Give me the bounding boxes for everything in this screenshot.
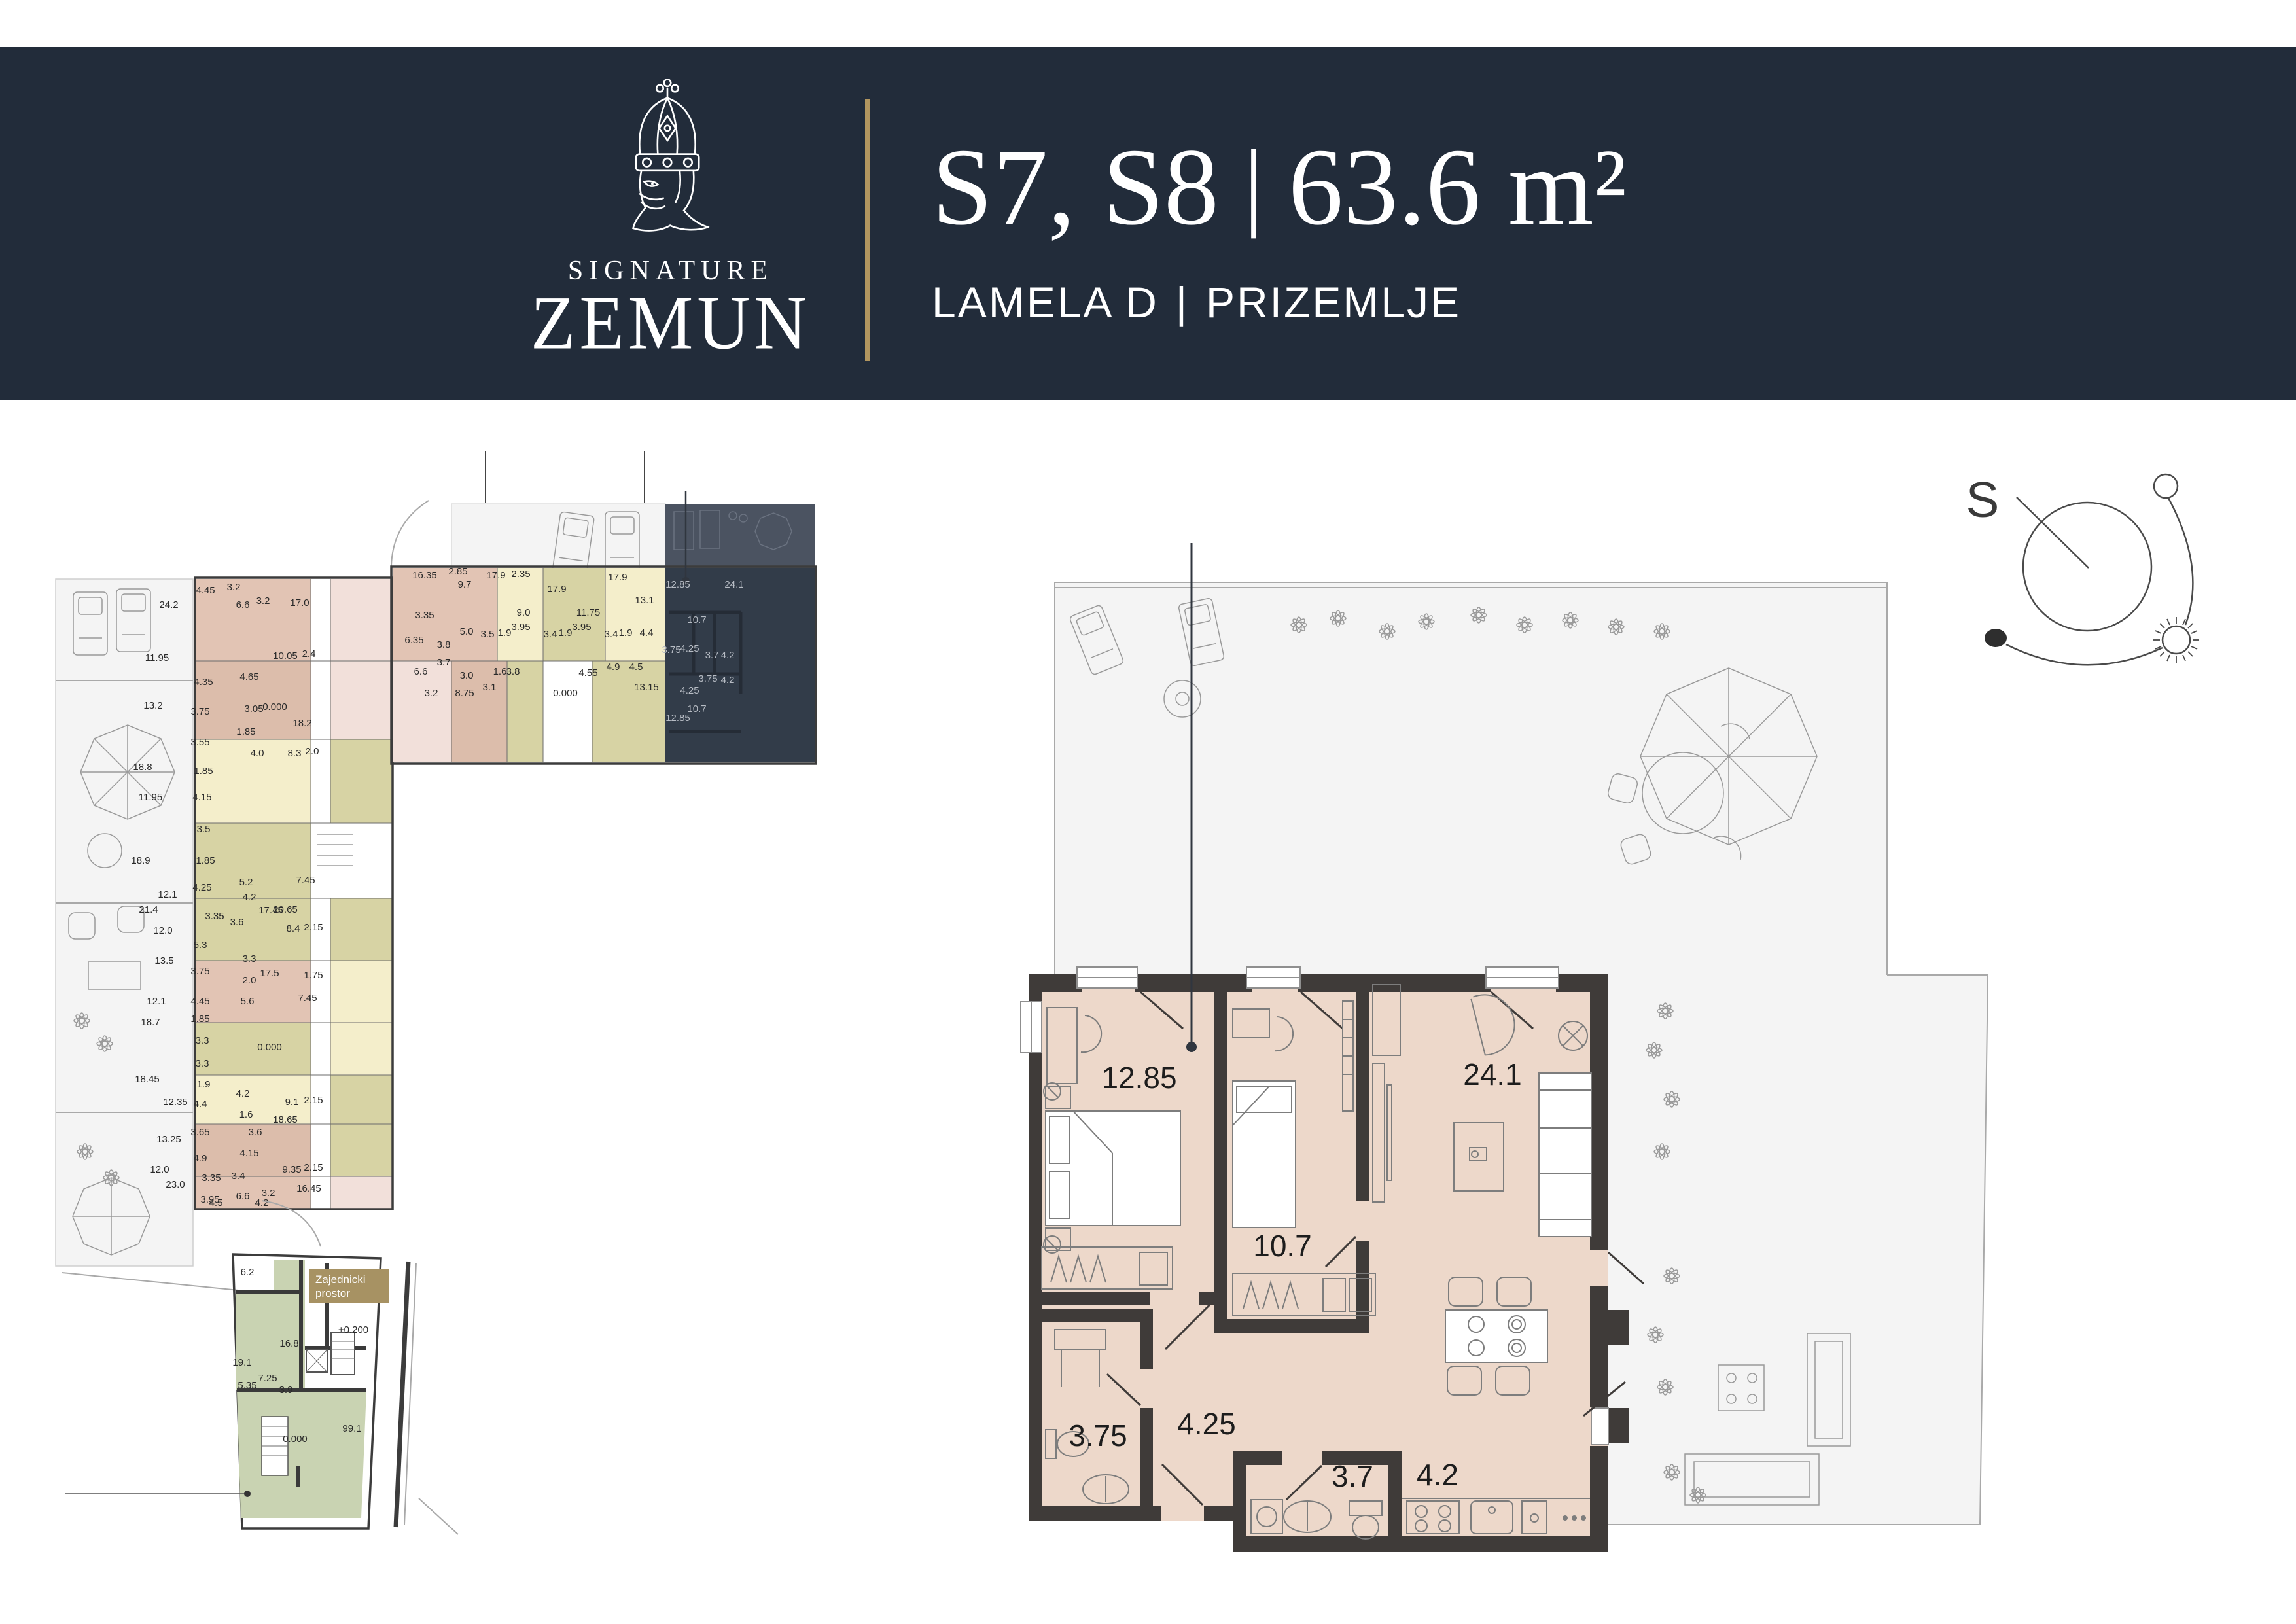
area-label: 1.85 — [194, 766, 213, 777]
area-label: 6.6 — [236, 1191, 250, 1202]
brand-name: ZEMUN — [517, 285, 824, 361]
area-label: 4.2 — [236, 1088, 250, 1099]
area-label: 4.2 — [721, 650, 735, 661]
area-label: 99.1 — [342, 1423, 361, 1434]
area-label: 4.55 — [578, 667, 597, 679]
area-label: 12.85 — [665, 713, 690, 724]
sun-path-arc — [2168, 498, 2193, 625]
area-label: 2.0 — [243, 975, 256, 986]
area-label: 17.0 — [290, 597, 309, 609]
compass: S — [1966, 472, 2199, 665]
umbrella-icon — [80, 725, 175, 819]
area-label: 8.4 — [287, 923, 300, 934]
sun-path-arc — [2006, 644, 2163, 665]
area-label: 24.1 — [1463, 1057, 1522, 1091]
compass-needle — [2017, 497, 2089, 568]
area-label: 18.9 — [131, 855, 150, 866]
area-label: 1.6 — [493, 666, 507, 677]
area-label: 12.0 — [153, 925, 172, 936]
area-label: 1.6 — [239, 1109, 253, 1120]
area-label: 5.0 — [460, 626, 474, 637]
sofa-icon — [1539, 1073, 1591, 1237]
area-label: 3.75 — [190, 706, 209, 717]
area-label: 12.35 — [163, 1097, 188, 1108]
single-bed-icon — [1233, 1081, 1296, 1227]
area-label: 3.35 — [205, 911, 224, 922]
area-label: +0.200 — [338, 1324, 368, 1335]
area-label: 3.55 — [190, 737, 209, 748]
area-label: 18.45 — [135, 1074, 160, 1085]
area-label: 12.1 — [147, 996, 166, 1007]
area-label: 12.85 — [1101, 1061, 1176, 1095]
area-label: 3.2 — [256, 595, 270, 607]
area-label: 3.5 — [481, 629, 495, 640]
area-label: 13.5 — [154, 955, 173, 966]
dining-table-icon — [1445, 1310, 1547, 1362]
area-label: 4.15 — [192, 792, 211, 803]
area-label: 1.9 — [619, 627, 633, 639]
area-value: 63.6 m² — [1288, 124, 1627, 251]
area-label: 2.15 — [304, 922, 323, 933]
area-label: 3.75 — [698, 673, 717, 684]
area-label: 3.3 — [243, 953, 256, 964]
area-label: 4.35 — [194, 677, 213, 688]
area-label: 3.35 — [202, 1173, 221, 1184]
area-label: 3.2 — [227, 582, 241, 593]
area-label: 2.4 — [302, 648, 316, 660]
area-label: 11.95 — [139, 792, 162, 803]
area-label: 1.85 — [190, 1014, 209, 1025]
area-label: 4.15 — [239, 1148, 258, 1159]
area-label: 5.6 — [241, 996, 255, 1007]
header: SIGNATURE ZEMUN S7, S8 | 63.6 m² LAMELA … — [0, 47, 2296, 400]
area-label: 3.35 — [415, 610, 434, 621]
area-label: 3.4 — [544, 629, 557, 640]
area-label: 13.25 — [156, 1134, 181, 1145]
badge-label-line1: Zajednicki — [315, 1273, 366, 1286]
area-label: 3.8 — [506, 666, 520, 677]
area-label: 9.35 — [282, 1164, 301, 1175]
area-label: 4.25 — [192, 882, 211, 893]
unit-title-row: S7, S8 | 63.6 m² — [932, 124, 1627, 251]
area-label: 1.9 — [498, 627, 512, 639]
area-label: 3.4 — [605, 629, 618, 640]
area-label: 2.85 — [448, 566, 467, 577]
area-label: 4.4 — [194, 1099, 207, 1110]
subtitle-row: LAMELA D | PRIZEMLJE — [932, 277, 1461, 327]
area-label: 4.9 — [607, 662, 620, 673]
area-label: 3.9 — [279, 1385, 293, 1396]
area-label: 6.6 — [414, 666, 428, 677]
brand: SIGNATURE ZEMUN — [517, 255, 824, 360]
area-label: 10.7 — [1253, 1229, 1312, 1263]
area-label: 3.3 — [196, 1035, 209, 1046]
area-label: 3.7 — [437, 657, 451, 668]
umbrella-icon — [1640, 668, 1817, 845]
area-label: 4.2 — [243, 892, 256, 903]
area-label: 3.75 — [190, 966, 209, 977]
area-label: 4.4 — [640, 627, 654, 639]
area-label: 17.9 — [486, 570, 505, 581]
area-label: 23.0 — [166, 1179, 185, 1190]
area-label: 2.0 — [306, 746, 319, 757]
area-label: 5.35 — [238, 1380, 256, 1391]
leader-dot — [1186, 1042, 1197, 1052]
building-middle — [391, 567, 816, 764]
area-label: 17.5 — [260, 968, 279, 979]
area-label: 12.1 — [158, 889, 177, 900]
floor-label: PRIZEMLJE — [1206, 277, 1461, 327]
area-label: 3.2 — [425, 688, 438, 699]
lamela-label: LAMELA D — [932, 277, 1159, 327]
site-plan-left: 24.211.954.453.217.06.63.213.24.3510.052… — [56, 578, 393, 1297]
area-label: 3.0 — [460, 670, 474, 681]
area-label: 0.000 — [553, 688, 578, 699]
area-label: 4.2 — [1417, 1458, 1458, 1492]
area-label: 3.4 — [232, 1171, 245, 1182]
area-label: 13.2 — [143, 700, 162, 711]
area-label: 9.1 — [285, 1097, 299, 1108]
area-label: 4.2 — [255, 1197, 269, 1209]
area-label: 1.9 — [197, 1079, 211, 1090]
area-label: 2.35 — [511, 569, 530, 580]
area-label: 24.2 — [159, 599, 178, 610]
area-label: 8.3 — [288, 748, 302, 759]
area-label: 12.85 — [665, 579, 690, 590]
divider-line — [865, 99, 870, 361]
area-label: 4.25 — [680, 643, 699, 654]
area-label: 3.6 — [249, 1127, 262, 1138]
area-label: 4.65 — [239, 671, 258, 682]
area-label: 1.9 — [559, 627, 573, 639]
area-label: 4.0 — [251, 748, 264, 759]
area-label: 13.15 — [634, 682, 659, 693]
north-label: S — [1966, 472, 2000, 528]
main-floor-plan: 12.8524.110.74.253.753.74.2 — [1021, 543, 1988, 1552]
area-label: 6.2 — [241, 1267, 255, 1278]
area-label: 7.45 — [298, 993, 317, 1004]
area-label: 21.4 — [139, 904, 158, 915]
area-label: 6.6 — [236, 599, 250, 610]
area-label: 3.3 — [196, 1058, 209, 1069]
area-label: 4.25 — [680, 685, 699, 696]
area-label: 8.75 — [455, 688, 474, 699]
area-label: 18.2 — [292, 718, 311, 729]
area-label: 18.65 — [273, 1114, 298, 1125]
title-separator: | — [1244, 128, 1263, 241]
area-label: 3.5 — [197, 824, 211, 835]
area-label: 6.35 — [404, 635, 423, 646]
area-label: 10.7 — [687, 614, 706, 626]
position-dot — [1985, 629, 2007, 647]
area-label: 3.75 — [1069, 1419, 1127, 1453]
area-label: 9.0 — [517, 607, 531, 618]
area-label: 3.6 — [230, 917, 244, 928]
badge-label-line2: prostor — [315, 1287, 350, 1299]
area-label: 3.95 — [511, 622, 530, 633]
area-label: 3.7 — [705, 650, 719, 661]
stair-core — [311, 823, 393, 898]
area-label: 2.15 — [304, 1095, 323, 1106]
area-label: 20.65 — [273, 904, 298, 915]
area-label: 16.35 — [412, 570, 437, 581]
area-label: 16.8 — [279, 1338, 298, 1349]
area-label: 3.05 — [244, 703, 263, 715]
area-label: 11.95 — [145, 652, 169, 663]
area-label: 13.1 — [635, 595, 654, 606]
crown-king-logo — [599, 73, 736, 245]
area-label: 5.3 — [194, 940, 207, 951]
area-label: 1.85 — [196, 855, 215, 866]
area-label: 3.1 — [483, 682, 497, 693]
area-label: 7.25 — [258, 1373, 277, 1384]
area-label: 3.95 — [572, 622, 591, 633]
unit-title: S7, S8 — [932, 124, 1219, 251]
area-label: 4.45 — [190, 996, 209, 1007]
area-label: 24.1 — [724, 579, 743, 590]
area-label: 11.75 — [576, 607, 600, 618]
area-label: 19.1 — [232, 1357, 251, 1368]
area-label: 1.75 — [304, 970, 323, 981]
moon-icon — [2154, 474, 2178, 498]
area-label: 3.7 — [1332, 1459, 1373, 1493]
area-label: 4.2 — [721, 675, 735, 686]
area-label: 17.9 — [547, 584, 566, 595]
area-label: 0.000 — [257, 1042, 282, 1053]
area-label: 17.9 — [608, 572, 627, 583]
sun-icon — [2153, 617, 2199, 663]
area-label: 4.5 — [629, 662, 643, 673]
area-label: 3.75 — [662, 644, 680, 656]
area-label: 10.05 — [273, 650, 298, 662]
area-label: 12.0 — [150, 1164, 169, 1175]
area-label: 4.45 — [196, 585, 215, 596]
area-label: 16.45 — [296, 1183, 321, 1194]
area-label: 0.000 — [262, 701, 287, 713]
area-label: 3.65 — [190, 1127, 209, 1138]
area-label: 18.7 — [141, 1017, 160, 1028]
area-label: 3.8 — [437, 639, 451, 650]
area-label: 4.5 — [209, 1197, 223, 1209]
area-label: 4.9 — [194, 1153, 207, 1164]
area-label: 1.85 — [236, 726, 255, 737]
area-label: 5.2 — [239, 877, 253, 888]
highlight-terrace — [665, 504, 815, 568]
area-label: 7.45 — [296, 875, 315, 886]
area-label: 9.7 — [458, 579, 472, 590]
area-label: 18.8 — [133, 762, 152, 773]
subtitle-separator: | — [1176, 277, 1189, 327]
area-label: 0.000 — [283, 1434, 308, 1445]
area-label: 4.25 — [1177, 1407, 1236, 1441]
site-plan-middle: 16.352.8517.92.3517.917.99.713.19.011.75… — [391, 451, 816, 764]
common-area-badge: Zajednicki prostor — [309, 1269, 389, 1303]
area-label: 2.15 — [304, 1162, 323, 1173]
